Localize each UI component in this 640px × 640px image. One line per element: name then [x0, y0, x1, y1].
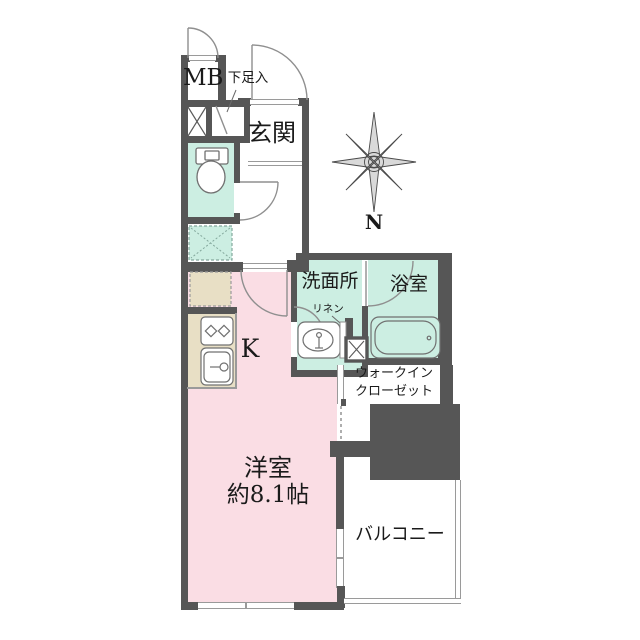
balcony-label: バルコニー: [351, 526, 449, 545]
kitchen-sink-fixture: [201, 348, 233, 385]
shoebox-door-line: [216, 106, 227, 134]
compass-icon: [332, 112, 416, 212]
bathtub-fixture: [371, 317, 440, 358]
walk-in-closet-label-line1: ウォークイン: [352, 367, 436, 381]
shoe-storage-label: 下足入: [226, 71, 270, 85]
pipe-shaft-x: [188, 107, 206, 136]
washroom-label: 洗面所: [298, 272, 362, 292]
walk-in-closet-label-line2: クローゼット: [352, 385, 436, 399]
main-room-size-label: 約8.1帖: [226, 483, 310, 507]
bathroom-label: 浴室: [386, 275, 432, 295]
linen-label: リネン: [310, 304, 346, 315]
duct-x-box: [346, 338, 367, 361]
compass-north-label: N: [362, 212, 386, 233]
mb-door-arc: [188, 28, 218, 58]
kitchen-door-arc: [241, 270, 287, 316]
meter-box-label: MB: [183, 66, 221, 90]
refrigerator-space: [190, 272, 231, 306]
entrance-label: 玄関: [242, 121, 302, 146]
main-room-label: 洋室: [236, 456, 300, 481]
laundry-space: [189, 226, 232, 260]
toilet-door-arc: [240, 182, 278, 220]
kitchen-label: K: [237, 336, 263, 362]
floor-plan: MB 下足入 玄関 洗面所 リネン 浴室 K ウォークイン クローゼット 洋室 …: [0, 0, 640, 640]
vanity-sink-fixture: [298, 322, 340, 358]
stove-fixture: [201, 317, 233, 345]
plan-symbols-layer: [0, 0, 640, 640]
shoe-storage-leader-line: [227, 90, 236, 112]
toilet-fixture: [196, 148, 228, 193]
